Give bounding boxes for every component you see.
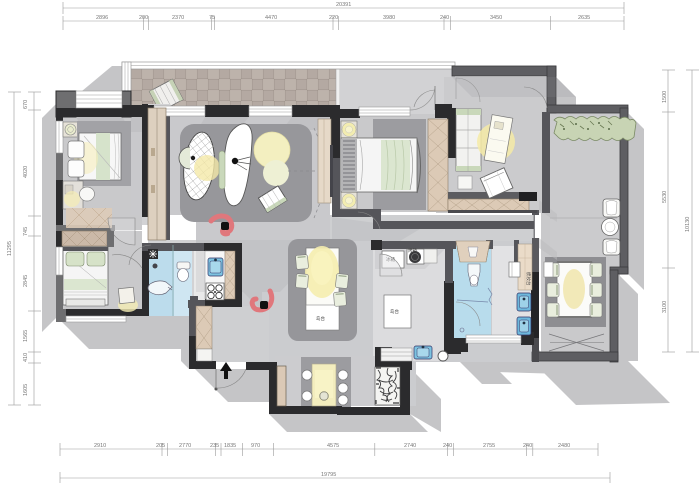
- svg-text:5530: 5530: [662, 191, 668, 203]
- svg-text:2770: 2770: [179, 443, 191, 449]
- svg-text:2845: 2845: [23, 275, 29, 287]
- svg-text:19795: 19795: [321, 472, 336, 478]
- svg-text:410: 410: [23, 353, 29, 362]
- svg-text:岛台: 岛台: [390, 308, 399, 315]
- svg-text:20391: 20391: [336, 2, 351, 8]
- svg-text:240: 240: [523, 443, 532, 449]
- svg-text:3980: 3980: [383, 15, 395, 21]
- svg-text:1500: 1500: [662, 91, 668, 103]
- svg-text:670: 670: [23, 100, 29, 109]
- svg-text:235: 235: [210, 443, 219, 449]
- svg-text:1565: 1565: [23, 330, 29, 342]
- svg-text:烤箱: 烤箱: [408, 247, 417, 254]
- svg-text:2480: 2480: [558, 443, 570, 449]
- svg-text:梳妆台: 梳妆台: [525, 272, 532, 286]
- svg-text:205: 205: [156, 443, 165, 449]
- svg-text:2740: 2740: [404, 443, 416, 449]
- svg-text:3450: 3450: [490, 15, 502, 21]
- svg-text:4470: 4470: [265, 15, 277, 21]
- svg-text:970: 970: [251, 443, 260, 449]
- svg-text:4575: 4575: [327, 443, 339, 449]
- svg-text:2635: 2635: [578, 15, 590, 21]
- svg-text:2755: 2755: [483, 443, 495, 449]
- svg-text:岛台: 岛台: [316, 315, 325, 322]
- svg-text:3100: 3100: [662, 301, 668, 313]
- svg-text:1605: 1605: [23, 384, 29, 396]
- svg-text:2896: 2896: [96, 15, 108, 21]
- svg-text:4020: 4020: [23, 166, 29, 178]
- svg-text:240: 240: [440, 15, 449, 21]
- svg-text:10130: 10130: [685, 217, 691, 232]
- svg-text:2910: 2910: [94, 443, 106, 449]
- svg-text:240: 240: [443, 443, 452, 449]
- svg-text:75: 75: [209, 15, 215, 21]
- svg-text:220: 220: [329, 15, 338, 21]
- svg-text:745: 745: [23, 227, 29, 236]
- svg-text:11295: 11295: [7, 241, 13, 256]
- svg-text:200: 200: [139, 15, 148, 21]
- svg-text:1835: 1835: [224, 443, 236, 449]
- svg-text:2370: 2370: [172, 15, 184, 21]
